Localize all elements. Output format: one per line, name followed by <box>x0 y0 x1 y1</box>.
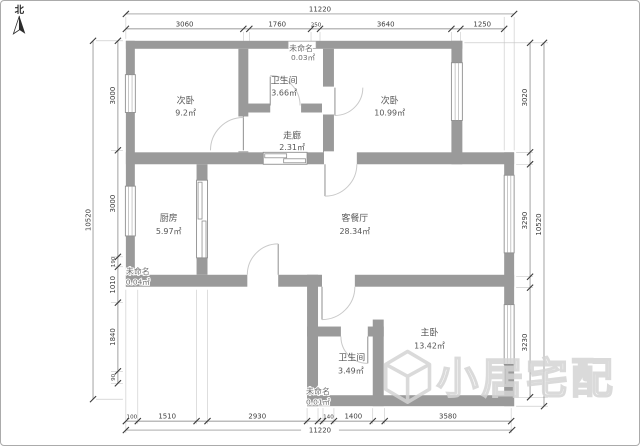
dim-top-seg-1: 1760 <box>268 20 286 28</box>
svg-text:未命名: 未命名 <box>126 266 150 276</box>
svg-text:未命名: 未命名 <box>289 43 313 53</box>
label-secondary-bedroom-1: 次卧9.2㎡ <box>175 95 196 118</box>
label-bathroom-1: 卫生间3.66㎡ <box>271 75 298 98</box>
svg-text:5.97㎡: 5.97㎡ <box>156 227 182 236</box>
svg-text:2.31㎡: 2.31㎡ <box>279 143 305 152</box>
svg-text:13.42㎡: 13.42㎡ <box>414 341 445 350</box>
watermark-text: 小居宅配 <box>436 354 615 403</box>
dim-bottom-seg-0: 100 <box>127 415 138 421</box>
svg-text:卫生间: 卫生间 <box>271 75 298 87</box>
dim-right-seg-0: 3020 <box>521 89 529 107</box>
dim-left-seg-5: 90 <box>111 373 117 381</box>
dim-bottom-seg-1: 1510 <box>158 413 176 421</box>
svg-text:次卧: 次卧 <box>381 95 399 107</box>
dimension-bottom: 100 1510 2930 140 1400 3580 11220 <box>123 413 515 435</box>
window-left-bedroom <box>125 75 135 113</box>
dim-top-seg-2: 250 <box>311 22 322 28</box>
svg-text:走廊: 走廊 <box>283 129 301 141</box>
north-arrow-dark-half <box>19 16 25 34</box>
dim-left-seg-0: 3000 <box>109 87 117 105</box>
floorplan-sheet: 次卧9.2㎡ 卫生间3.66㎡ 未命名0.03㎡ 次卧10.99㎡ 走廊2.31… <box>0 0 640 446</box>
svg-text:9.2㎡: 9.2㎡ <box>175 108 196 117</box>
dim-top-total: 11220 <box>309 5 331 13</box>
dim-top-seg-4: 1250 <box>473 20 491 28</box>
door-living-south <box>247 244 278 275</box>
dim-right-seg-2: 3230 <box>521 334 529 352</box>
svg-text:主卧: 主卧 <box>421 326 439 338</box>
dim-top-seg-3: 3640 <box>377 20 395 28</box>
label-bathroom-2: 卫生间3.49㎡ <box>338 351 365 375</box>
svg-text:客餐厅: 客餐厅 <box>341 212 368 224</box>
watermark-cube-icon <box>386 351 430 402</box>
label-living-dining: 客餐厅28.34㎡ <box>339 212 370 236</box>
label-master-bedroom: 主卧13.42㎡ <box>414 326 445 350</box>
dim-bottom-total: 11220 <box>309 427 331 435</box>
window-left-kitchen <box>125 186 135 236</box>
north-arrow-light-half <box>13 16 19 34</box>
label-unnamed-top: 未命名0.03㎡ <box>289 43 315 62</box>
sliding-door-corridor <box>263 152 307 164</box>
dim-bottom-seg-3: 140 <box>323 415 334 421</box>
label-corridor: 走廊2.31㎡ <box>279 129 305 151</box>
label-kitchen: 厨房5.97㎡ <box>156 212 182 236</box>
svg-text:3.49㎡: 3.49㎡ <box>338 366 364 375</box>
svg-text:0.04㎡: 0.04㎡ <box>126 278 151 287</box>
svg-text:0.01㎡: 0.01㎡ <box>306 398 331 407</box>
svg-text:28.34㎡: 28.34㎡ <box>339 227 370 236</box>
svg-text:0.03㎡: 0.03㎡ <box>291 53 316 62</box>
door-hall <box>322 287 355 320</box>
window-living-right <box>504 175 514 253</box>
sliding-door-kitchen <box>197 180 208 258</box>
dim-bottom-seg-5: 3580 <box>439 413 457 421</box>
dim-right-seg-1: 3290 <box>521 212 529 230</box>
dim-bottom-seg-2: 2930 <box>248 413 266 421</box>
room-labels: 次卧9.2㎡ 卫生间3.66㎡ 未命名0.03㎡ 次卧10.99㎡ 走廊2.31… <box>126 43 445 407</box>
wall-openings <box>237 41 367 337</box>
label-secondary-bedroom-2: 次卧10.99㎡ <box>374 95 405 118</box>
dim-left-seg-1: 3000 <box>109 195 117 213</box>
dimension-left: 10520 3000 3000 190 1010 1840 90 <box>85 38 121 403</box>
dim-left-seg-3: 1010 <box>109 276 117 294</box>
door-living-north <box>325 164 357 196</box>
svg-text:厨房: 厨房 <box>160 212 178 224</box>
floorplan-drawing: 次卧9.2㎡ 卫生间3.66㎡ 未命名0.03㎡ 次卧10.99㎡ 走廊2.31… <box>1 1 639 445</box>
dim-right-total: 10520 <box>535 213 543 235</box>
north-arrow: 北 <box>13 4 25 34</box>
dim-bottom-seg-4: 1400 <box>344 413 362 421</box>
dimension-top: 11220 3060 1760 250 3640 1250 <box>123 5 517 32</box>
svg-text:10.99㎡: 10.99㎡ <box>374 108 405 117</box>
dim-top-seg-0: 3060 <box>176 20 194 28</box>
dim-left-seg-2: 190 <box>111 256 117 267</box>
svg-text:卫生间: 卫生间 <box>338 351 365 363</box>
svg-text:未命名: 未命名 <box>306 386 330 396</box>
dim-left-seg-4: 1840 <box>109 328 117 346</box>
north-label: 北 <box>15 4 25 16</box>
door-bedroom2 <box>335 88 363 116</box>
window-bedroom2-right <box>451 63 462 121</box>
dim-left-total: 10520 <box>85 209 93 231</box>
svg-text:次卧: 次卧 <box>177 95 195 107</box>
watermark: 小居宅配 <box>386 351 616 403</box>
svg-text:3.66㎡: 3.66㎡ <box>271 89 297 98</box>
